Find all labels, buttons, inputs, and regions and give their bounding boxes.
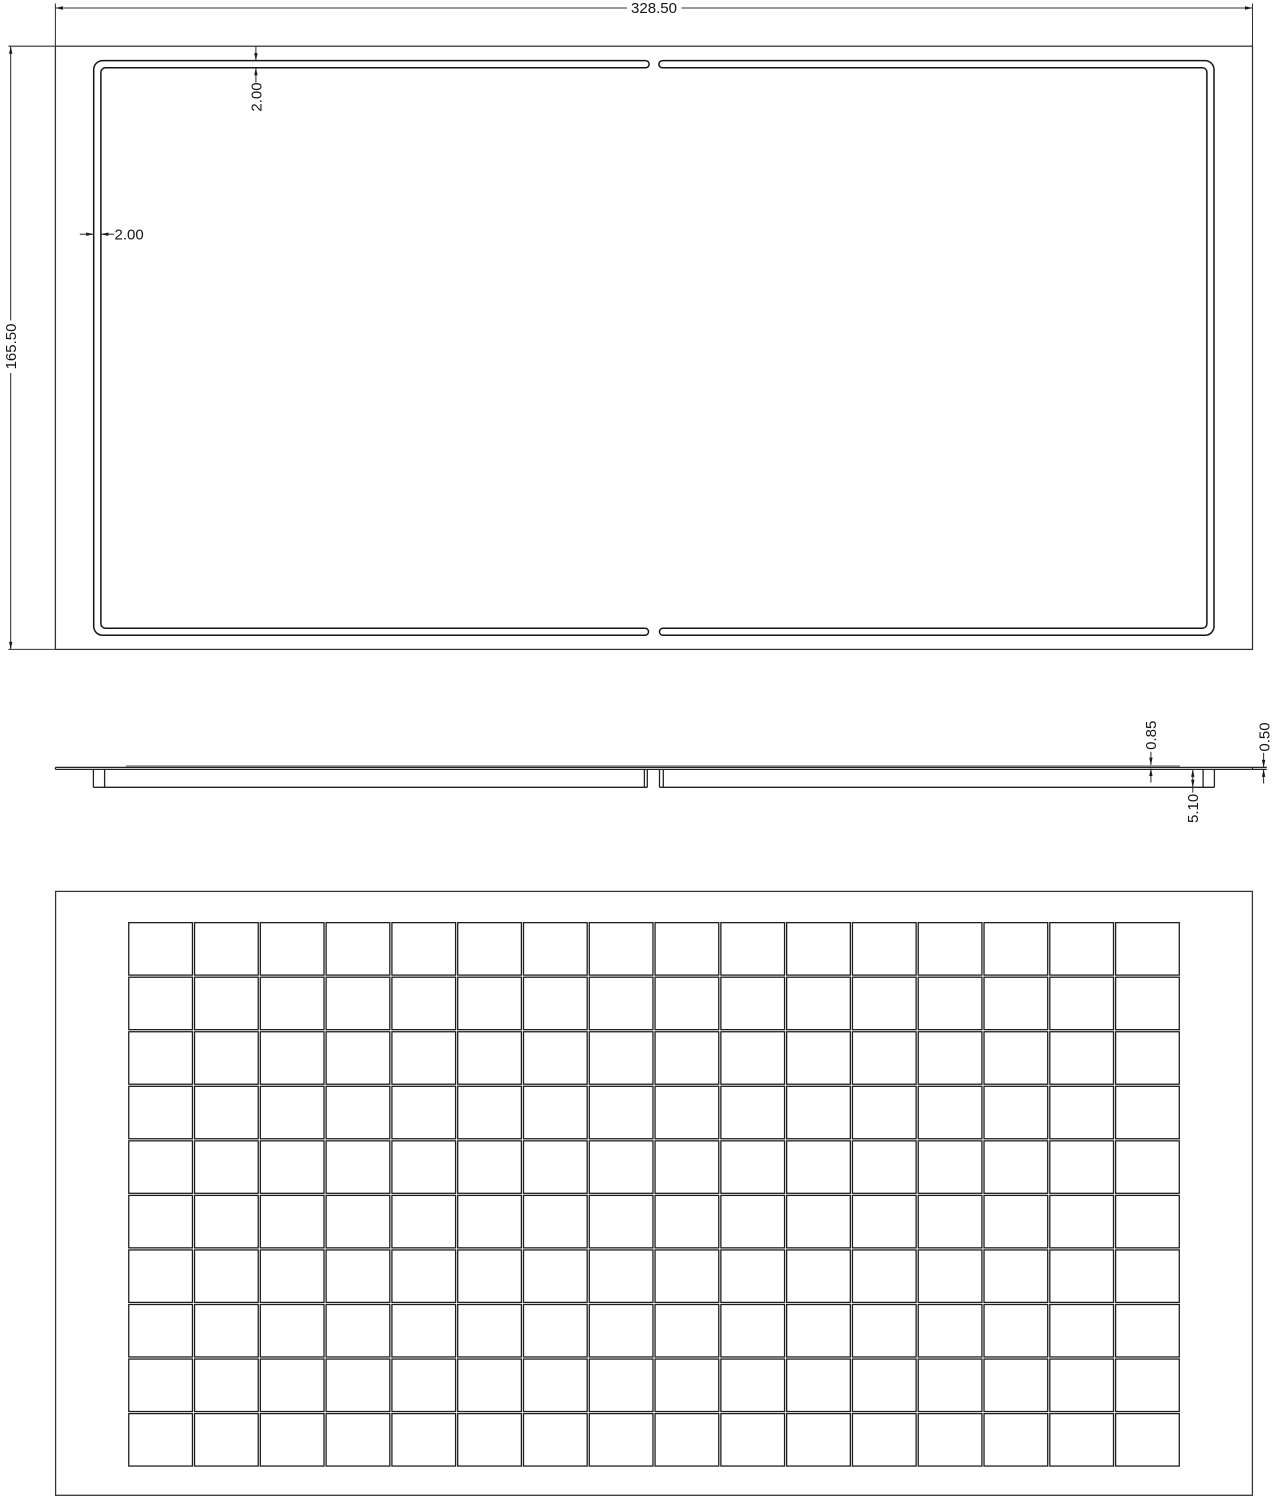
svg-text:0.85: 0.85 (1143, 721, 1160, 750)
svg-text:2.00: 2.00 (115, 227, 144, 244)
svg-text:2.00: 2.00 (248, 82, 265, 111)
svg-text:328.50: 328.50 (631, 0, 677, 17)
svg-text:0.50: 0.50 (1256, 722, 1272, 751)
svg-text:5.10: 5.10 (1185, 794, 1202, 823)
svg-text:165.50: 165.50 (3, 324, 20, 370)
